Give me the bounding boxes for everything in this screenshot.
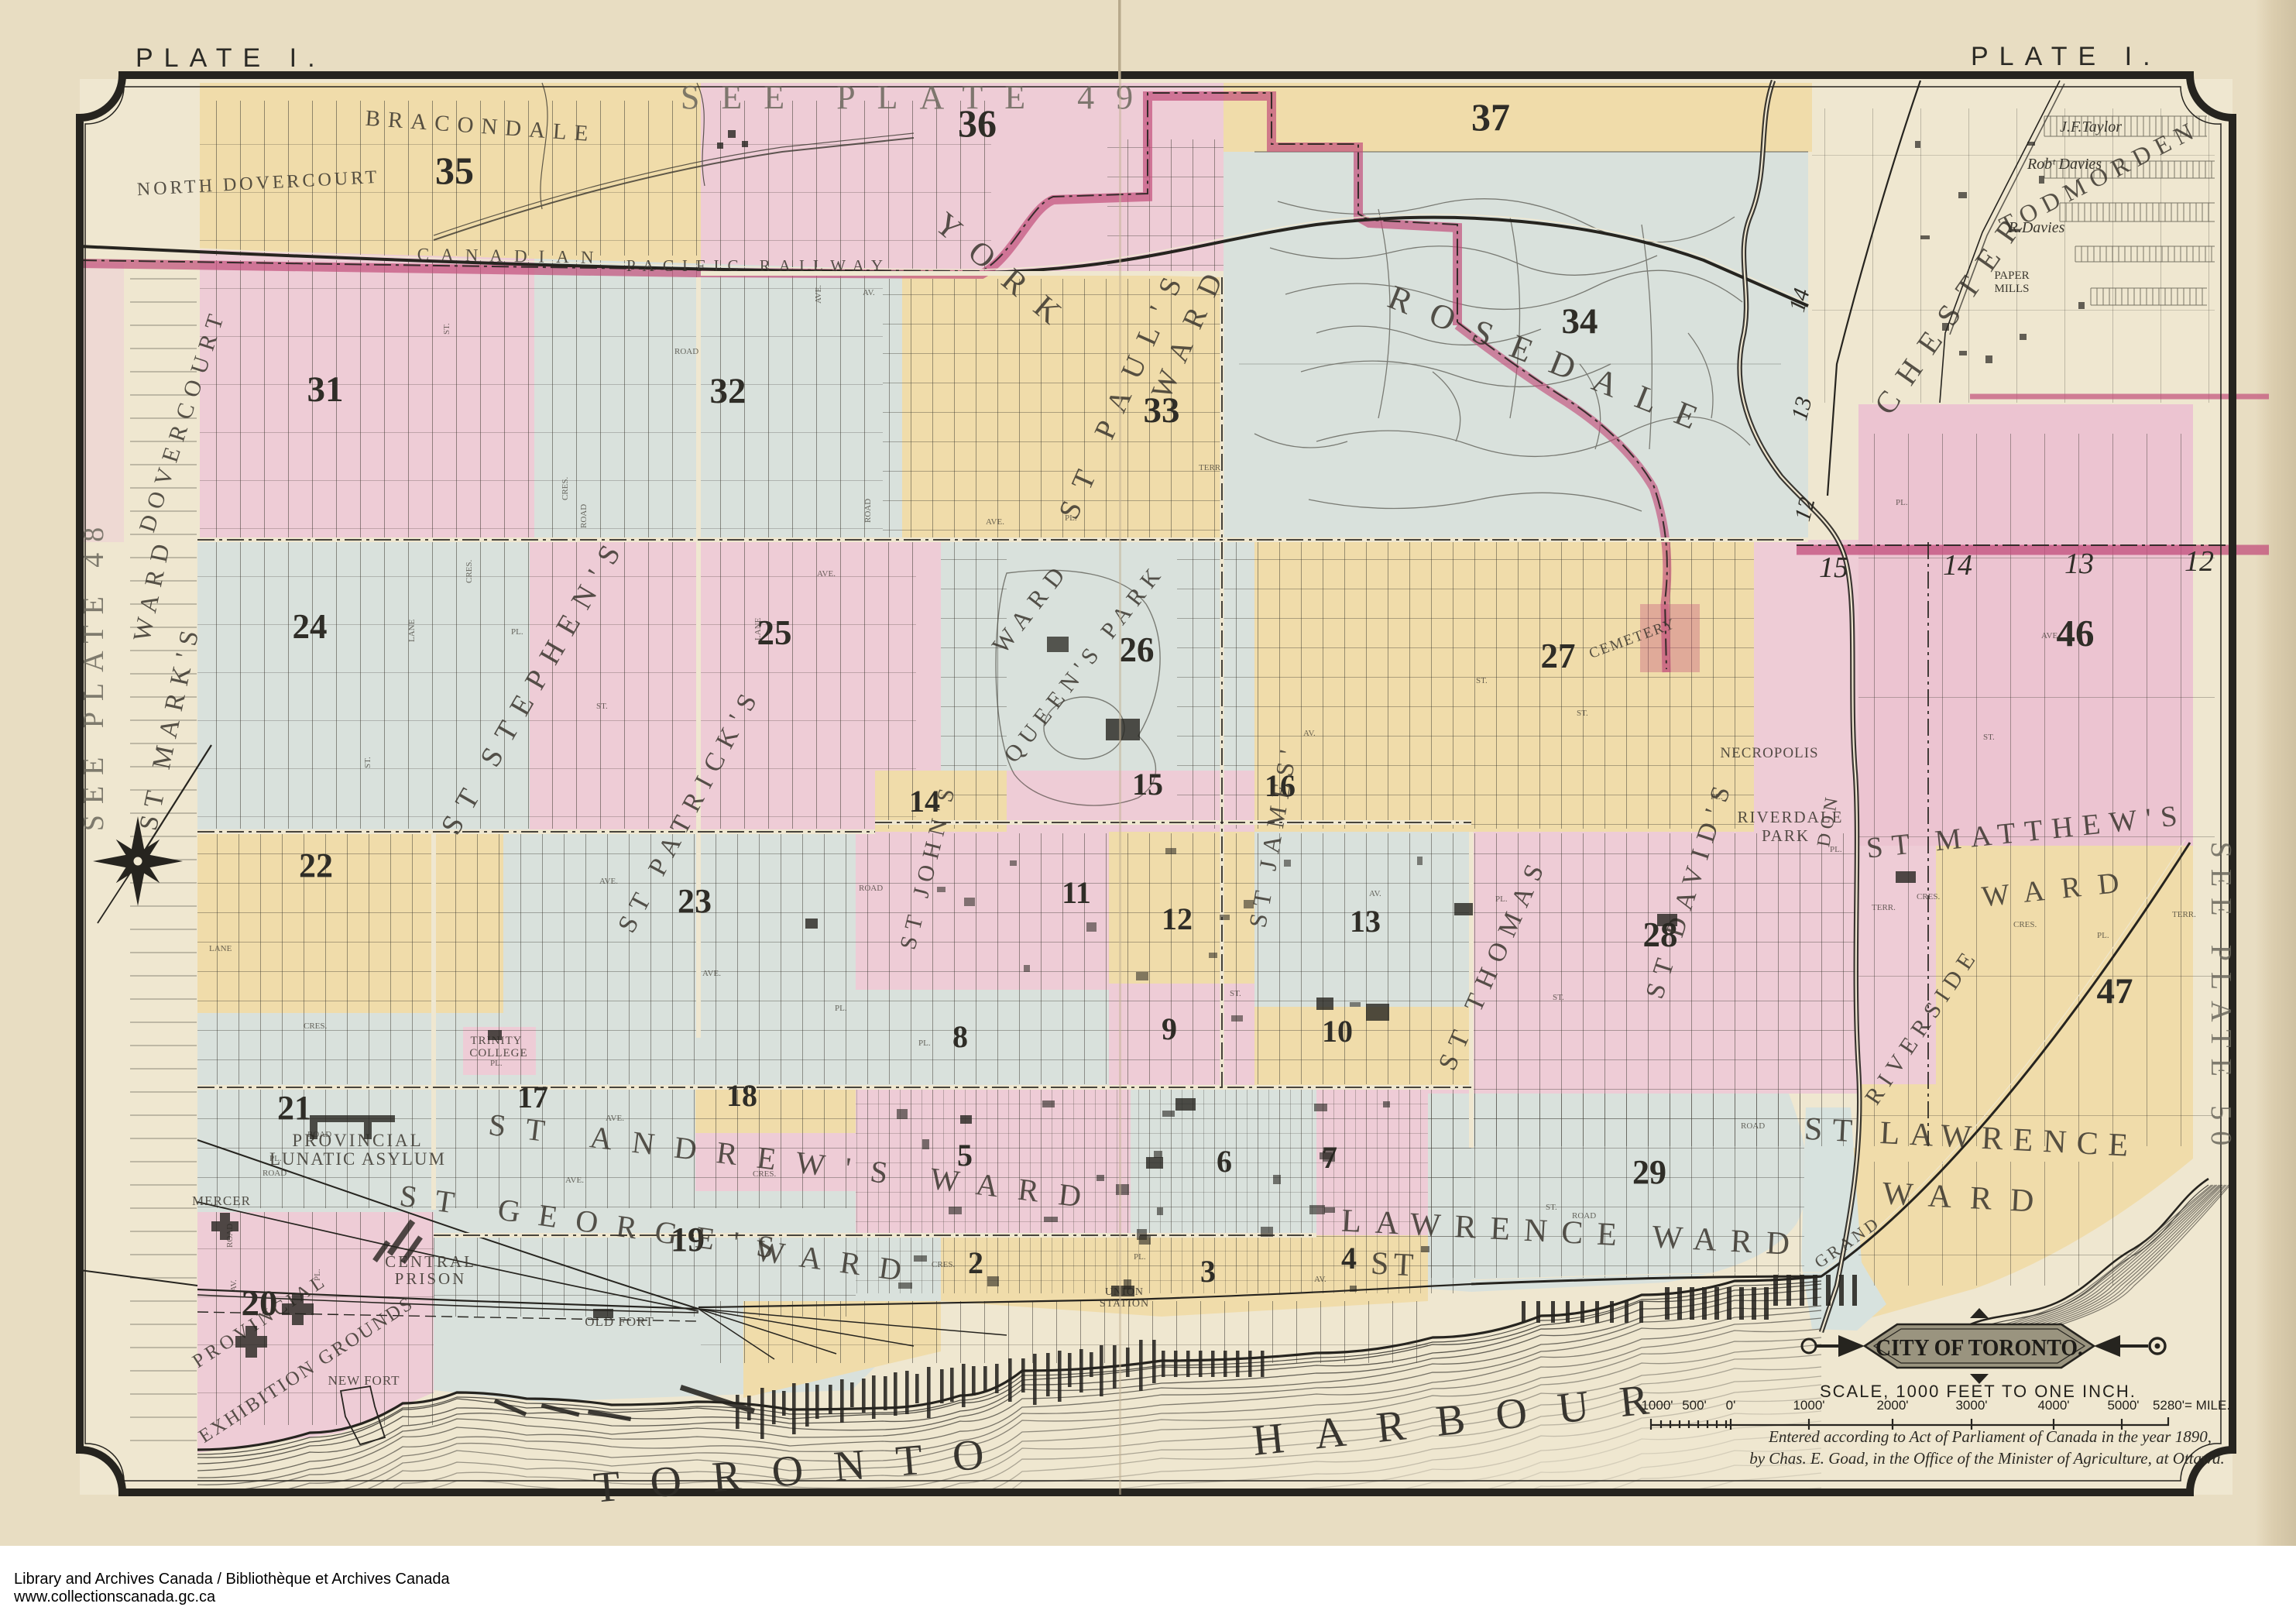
- svg-text:SEE PLATE 50: SEE PLATE 50: [2205, 842, 2237, 1157]
- svg-text:11: 11: [1062, 875, 1091, 910]
- svg-text:LANE: LANE: [407, 619, 417, 642]
- svg-text:TERR.: TERR.: [1872, 903, 1896, 912]
- svg-text:ST.: ST.: [1983, 733, 1995, 742]
- svg-text:SEE PLATE 48: SEE PLATE 48: [77, 517, 110, 832]
- svg-text:MILLS: MILLS: [1995, 283, 2030, 295]
- svg-text:PRISON: PRISON: [395, 1269, 467, 1288]
- svg-text:8: 8: [952, 1019, 968, 1054]
- svg-text:4: 4: [1341, 1241, 1357, 1276]
- svg-text:AVE.: AVE.: [817, 569, 836, 579]
- svg-text:STATION: STATION: [1100, 1298, 1149, 1310]
- svg-text:35: 35: [435, 149, 474, 192]
- svg-text:14: 14: [1943, 549, 1972, 582]
- svg-text:1000': 1000': [1793, 1398, 1824, 1413]
- svg-text:ST.: ST.: [1577, 709, 1588, 718]
- svg-text:13: 13: [2064, 548, 2094, 580]
- svg-text:PL.: PL.: [1495, 894, 1508, 904]
- svg-text:PACIFIC RAILWAY: PACIFIC RAILWAY: [626, 256, 891, 275]
- svg-text:CRES.: CRES.: [304, 1022, 328, 1031]
- svg-text:AVE.: AVE.: [814, 285, 823, 304]
- svg-text:Entered according to Act of Pa: Entered according to Act of Parliament o…: [1768, 1427, 2212, 1446]
- svg-text:CRES.: CRES.: [2013, 920, 2037, 929]
- svg-text:TERR.: TERR.: [2172, 910, 2196, 919]
- svg-text:12: 12: [1162, 901, 1193, 936]
- svg-text:PL.: PL.: [835, 1004, 847, 1013]
- svg-text:47: 47: [2097, 971, 2133, 1011]
- svg-text:4000': 4000': [2037, 1398, 2069, 1413]
- svg-text:12: 12: [2184, 545, 2214, 578]
- svg-text:PL.: PL.: [490, 1059, 503, 1068]
- svg-text:5000': 5000': [2107, 1398, 2139, 1413]
- svg-text:CRES.: CRES.: [561, 476, 570, 500]
- svg-text:21: 21: [277, 1089, 311, 1127]
- svg-text:26: 26: [1120, 630, 1155, 669]
- svg-text:AV.: AV.: [1314, 1275, 1326, 1284]
- svg-text:NECROPOLIS: NECROPOLIS: [1720, 745, 1818, 761]
- svg-text:PL.: PL.: [1896, 498, 1908, 507]
- svg-text:6: 6: [1217, 1144, 1232, 1179]
- svg-text:1000': 1000': [1641, 1398, 1673, 1413]
- svg-text:LANE: LANE: [209, 944, 232, 953]
- svg-text:AVE.: AVE.: [2041, 631, 2060, 640]
- svg-text:2000': 2000': [1876, 1398, 1908, 1413]
- svg-text:CITY OF TORONTO.: CITY OF TORONTO.: [1876, 1334, 2083, 1361]
- svg-text:AV.: AV.: [1369, 889, 1381, 898]
- svg-text:CANADIAN: CANADIAN: [417, 245, 606, 267]
- svg-text:10: 10: [1322, 1014, 1353, 1049]
- svg-text:29: 29: [1632, 1153, 1666, 1191]
- svg-text:3000': 3000': [1955, 1398, 1987, 1413]
- svg-text:0': 0': [1726, 1398, 1736, 1413]
- svg-text:COLLEGE: COLLEGE: [469, 1047, 527, 1059]
- svg-text:PARK: PARK: [1762, 826, 1810, 845]
- svg-text:LANE: LANE: [753, 617, 763, 640]
- svg-text:LUNATIC ASYLUM: LUNATIC ASYLUM: [269, 1149, 446, 1169]
- svg-text:PL.: PL.: [313, 1269, 322, 1281]
- svg-text:AV.: AV.: [863, 288, 875, 297]
- svg-text:ST.: ST.: [363, 757, 372, 768]
- svg-text:CRES.: CRES.: [1917, 892, 1941, 901]
- svg-text:TERR.: TERR.: [1199, 463, 1223, 472]
- svg-text:500': 500': [1682, 1398, 1707, 1413]
- svg-text:PLATE I.: PLATE I.: [1971, 42, 2161, 71]
- svg-text:SEE PLATE 49: SEE PLATE 49: [681, 78, 1155, 116]
- svg-text:PL.: PL.: [1830, 845, 1842, 854]
- svg-text:ROAD: ROAD: [674, 347, 698, 356]
- svg-text:CRES.: CRES.: [465, 559, 474, 583]
- svg-text:3: 3: [1200, 1254, 1216, 1289]
- svg-text:AVE.: AVE.: [599, 877, 618, 886]
- svg-text:ST.: ST.: [442, 323, 451, 335]
- svg-text:15: 15: [1819, 551, 1848, 584]
- svg-text:PLATE I.: PLATE I.: [136, 43, 326, 73]
- svg-text:ST.: ST.: [596, 702, 608, 711]
- svg-text:ST.: ST.: [1476, 676, 1488, 685]
- svg-text:17: 17: [517, 1080, 548, 1114]
- svg-text:by Chas. E. Goad, in the Offic: by Chas. E. Goad, in the Office of the M…: [1749, 1449, 2225, 1468]
- svg-text:AV.: AV.: [229, 1279, 239, 1292]
- svg-text:AVE.: AVE.: [565, 1176, 584, 1185]
- svg-text:PL.: PL.: [2097, 931, 2109, 940]
- svg-text:CRES.: CRES.: [932, 1260, 956, 1269]
- svg-text:ROAD: ROAD: [859, 884, 883, 893]
- svg-text:22: 22: [299, 846, 333, 884]
- svg-text:AVE.: AVE.: [986, 517, 1004, 527]
- svg-text:27: 27: [1541, 637, 1576, 675]
- svg-text:PL.: PL.: [1711, 792, 1723, 802]
- svg-text:CENTRAL: CENTRAL: [385, 1252, 476, 1271]
- svg-text:PL.: PL.: [1134, 1252, 1146, 1262]
- svg-text:5280'= MILE.: 5280'= MILE.: [2153, 1398, 2230, 1413]
- svg-text:ST.: ST.: [1230, 989, 1241, 998]
- svg-text:AVE.: AVE.: [702, 969, 721, 978]
- svg-text:46: 46: [2057, 612, 2095, 654]
- svg-text:31: 31: [307, 369, 344, 410]
- svg-text:2: 2: [968, 1245, 983, 1280]
- svg-text:37: 37: [1471, 95, 1510, 139]
- svg-text:ROAD: ROAD: [1572, 1211, 1596, 1221]
- svg-text:ROAD: ROAD: [579, 504, 589, 528]
- svg-text:23: 23: [678, 882, 712, 920]
- svg-text:PL.: PL.: [511, 627, 523, 637]
- svg-text:J.F.Taylor: J.F.Taylor: [2060, 118, 2122, 136]
- svg-text:PL.: PL.: [269, 1154, 282, 1163]
- svg-text:AVE.: AVE.: [606, 1114, 624, 1123]
- svg-text:9: 9: [1162, 1011, 1177, 1046]
- svg-text:www.collectionscanada.gc.ca: www.collectionscanada.gc.ca: [13, 1588, 216, 1605]
- svg-text:Library and Archives Canada /: Library and Archives Canada / Bibliothèq…: [14, 1571, 450, 1588]
- svg-text:ROAD: ROAD: [863, 499, 873, 523]
- svg-text:PL.: PL.: [918, 1039, 931, 1048]
- svg-text:ROAD: ROAD: [263, 1169, 287, 1178]
- svg-text:AV.: AV.: [1303, 729, 1316, 738]
- svg-text:ST.: ST.: [1553, 993, 1564, 1002]
- svg-text:18: 18: [726, 1078, 757, 1113]
- svg-text:ST: ST: [1370, 1245, 1419, 1283]
- svg-text:ST.: ST.: [1546, 1203, 1557, 1212]
- svg-text:15: 15: [1132, 767, 1163, 802]
- svg-text:CRES.: CRES.: [753, 1169, 777, 1179]
- svg-text:NEW FORT: NEW FORT: [328, 1373, 400, 1388]
- svg-text:32: 32: [710, 371, 746, 411]
- svg-text:ROAD: ROAD: [1741, 1121, 1765, 1131]
- svg-text:24: 24: [293, 607, 328, 646]
- svg-text:MERCER: MERCER: [192, 1193, 251, 1208]
- svg-text:PL.: PL.: [1065, 513, 1077, 523]
- svg-text:34: 34: [1562, 301, 1598, 342]
- svg-text:13: 13: [1350, 904, 1381, 939]
